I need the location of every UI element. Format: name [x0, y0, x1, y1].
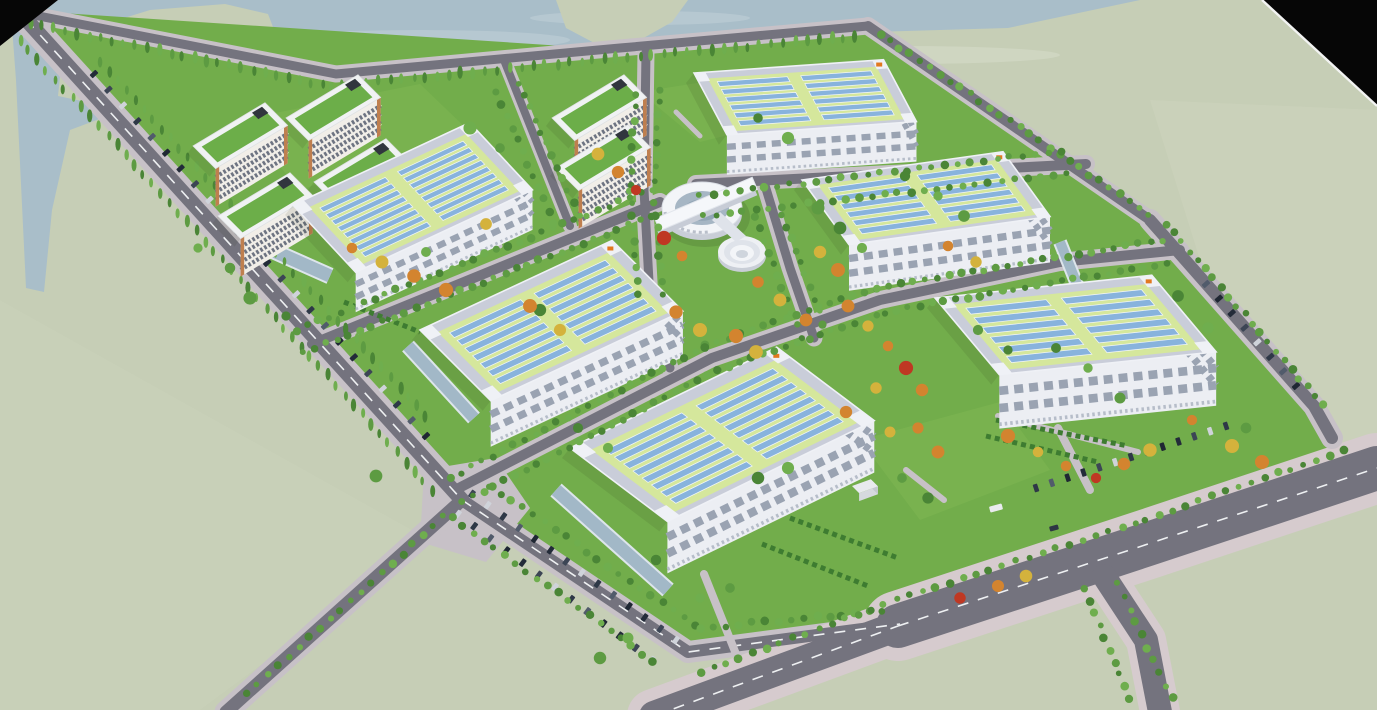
street-tree: [449, 265, 456, 272]
street-tree: [776, 640, 782, 646]
street-tree: [905, 48, 913, 56]
street-tree: [239, 275, 243, 284]
street-tree: [999, 178, 1005, 184]
street-tree: [265, 671, 272, 678]
street-tree: [1100, 247, 1106, 253]
street-tree: [736, 187, 743, 194]
lawn-tree: [495, 143, 505, 153]
lawn-tree: [1241, 423, 1252, 434]
street-tree: [547, 253, 554, 260]
street-tree: [804, 198, 812, 206]
street-tree: [837, 295, 844, 302]
street-tree: [975, 292, 984, 301]
street-tree: [1195, 497, 1202, 504]
street-tree: [1092, 532, 1099, 539]
street-tree: [503, 242, 512, 251]
street-tree: [934, 275, 941, 282]
street-tree: [497, 100, 506, 109]
street-tree: [1090, 608, 1098, 616]
street-tree: [1295, 375, 1302, 382]
street-tree: [43, 66, 47, 76]
street-tree: [659, 278, 666, 285]
street-tree: [414, 399, 419, 411]
street-tree: [469, 256, 477, 264]
lawn-tree: [651, 555, 661, 565]
street-tree: [641, 406, 647, 412]
street-tree: [992, 264, 1000, 272]
street-tree: [1155, 669, 1162, 676]
street-tree: [629, 200, 635, 206]
street-tree: [569, 245, 575, 251]
lawn-tree: [463, 121, 476, 134]
lawn-tree: [421, 247, 431, 257]
street-tree: [1033, 282, 1041, 290]
street-tree: [1039, 255, 1046, 262]
street-tree: [509, 440, 517, 448]
street-tree: [763, 645, 772, 654]
lawn-tree: [603, 443, 613, 453]
street-tree: [1025, 129, 1033, 137]
lawn-tree: [900, 171, 910, 181]
street-tree: [540, 194, 548, 202]
street-tree: [597, 397, 603, 403]
street-tree: [195, 224, 200, 235]
street-tree: [1159, 238, 1165, 244]
street-tree: [869, 194, 876, 201]
street-tree: [1066, 157, 1074, 165]
street-tree: [542, 455, 550, 463]
autumn-tree: [1001, 429, 1015, 443]
street-tree: [1148, 239, 1154, 245]
street-tree: [607, 392, 614, 399]
street-tree: [150, 115, 154, 125]
street-tree: [556, 59, 561, 71]
street-tree: [603, 52, 608, 64]
street-tree: [800, 615, 807, 622]
street-tree: [321, 80, 325, 89]
street-tree: [931, 583, 940, 592]
street-tree: [829, 198, 837, 206]
street-tree: [650, 398, 658, 406]
autumn-tree: [631, 185, 641, 195]
street-tree: [1156, 511, 1164, 519]
street-tree: [1094, 272, 1101, 279]
lawn-tree: [1202, 322, 1214, 334]
street-tree: [1075, 250, 1083, 258]
street-tree: [87, 109, 92, 122]
street-tree: [541, 426, 549, 434]
street-tree: [391, 285, 399, 293]
street-tree: [697, 669, 705, 677]
street-tree: [1313, 457, 1320, 464]
street-tree: [598, 620, 605, 627]
street-tree: [459, 260, 466, 267]
street-tree: [297, 644, 303, 650]
street-tree: [221, 254, 225, 263]
autumn-tree: [554, 324, 566, 336]
street-tree: [800, 181, 806, 187]
street-tree: [413, 466, 418, 479]
office-trim-pier: [284, 125, 288, 165]
street-tree: [1110, 245, 1116, 251]
street-tree: [841, 34, 845, 43]
street-tree: [628, 128, 636, 136]
street-tree: [998, 563, 1005, 570]
street-tree: [697, 45, 702, 57]
street-tree: [1273, 349, 1279, 355]
street-tree: [471, 530, 478, 537]
street-tree: [1208, 491, 1216, 499]
street-tree: [625, 53, 629, 63]
street-tree: [960, 574, 967, 581]
street-tree: [829, 621, 836, 628]
street-tree: [274, 661, 282, 669]
street-tree: [657, 99, 663, 105]
lawn-tree: [573, 423, 583, 433]
street-tree: [499, 446, 507, 454]
street-tree: [812, 178, 820, 186]
street-tree: [511, 471, 520, 480]
street-tree: [72, 93, 76, 102]
street-tree: [618, 387, 626, 395]
street-tree: [1087, 249, 1095, 257]
street-tree: [946, 579, 955, 588]
street-tree: [722, 660, 729, 667]
street-tree: [304, 633, 312, 641]
street-tree: [558, 174, 566, 182]
autumn-tree: [523, 299, 537, 313]
street-tree: [211, 246, 215, 256]
street-tree: [530, 173, 536, 179]
street-tree: [778, 204, 786, 212]
street-tree: [917, 302, 925, 310]
street-tree: [1282, 357, 1289, 364]
street-tree: [1289, 365, 1298, 374]
autumn-tree: [439, 283, 453, 297]
street-tree: [653, 139, 660, 146]
street-tree: [1249, 321, 1256, 328]
street-tree: [430, 523, 436, 529]
street-tree: [1018, 123, 1025, 130]
street-tree: [1098, 623, 1104, 629]
street-tree: [422, 411, 427, 423]
street-tree: [490, 454, 497, 461]
street-tree: [1139, 264, 1147, 272]
street-tree: [765, 206, 771, 212]
street-tree: [652, 178, 658, 184]
street-tree: [1134, 239, 1142, 247]
street-tree: [627, 578, 634, 585]
street-tree: [773, 272, 781, 280]
street-tree: [969, 268, 976, 275]
street-tree: [158, 188, 162, 199]
street-tree: [852, 30, 857, 43]
street-tree: [39, 20, 43, 30]
street-tree: [877, 30, 886, 39]
street-tree: [490, 275, 496, 281]
street-tree: [481, 488, 489, 496]
autumn-tree: [657, 231, 671, 245]
street-tree: [356, 327, 364, 335]
autumn-tree: [899, 361, 913, 375]
lawn-tree: [281, 311, 290, 320]
street-tree: [631, 252, 637, 258]
street-tree: [769, 318, 776, 325]
street-tree: [1064, 253, 1072, 261]
street-tree: [713, 366, 721, 374]
street-tree: [501, 551, 509, 559]
roof-logo-mark: [607, 246, 613, 250]
street-tree: [986, 290, 992, 296]
street-tree: [379, 569, 386, 576]
street-tree: [941, 161, 950, 170]
street-tree: [564, 188, 570, 194]
street-tree: [543, 139, 549, 145]
autumn-tree: [883, 341, 894, 352]
street-tree: [366, 323, 374, 331]
street-tree: [1116, 670, 1122, 676]
street-tree: [670, 359, 676, 365]
street-tree: [598, 427, 605, 434]
street-tree: [1052, 544, 1059, 551]
street-tree: [615, 571, 621, 577]
lawn-tree: [752, 472, 764, 484]
street-tree: [538, 228, 544, 234]
street-tree: [470, 67, 475, 80]
street-tree: [628, 409, 636, 417]
street-tree: [1128, 608, 1134, 614]
street-tree: [527, 234, 536, 243]
street-tree: [565, 415, 572, 422]
autumn-tree: [774, 294, 787, 307]
autumn-tree: [677, 251, 688, 262]
street-tree: [400, 309, 408, 317]
street-tree: [533, 432, 539, 438]
street-tree: [544, 582, 552, 590]
street-tree: [971, 182, 977, 188]
street-tree: [61, 84, 65, 94]
street-tree: [1080, 273, 1088, 281]
street-tree: [523, 467, 530, 474]
street-tree: [300, 349, 306, 355]
street-tree: [651, 212, 660, 221]
street-tree: [825, 176, 832, 183]
street-tree: [801, 631, 808, 638]
street-tree: [204, 237, 209, 248]
street-tree: [63, 27, 67, 35]
street-tree: [516, 239, 523, 246]
autumn-tree: [1091, 473, 1101, 483]
street-tree: [458, 498, 465, 505]
street-tree: [490, 544, 496, 550]
street-tree: [818, 321, 826, 329]
street-tree: [377, 429, 381, 438]
street-tree: [343, 332, 351, 340]
autumn-tree: [814, 246, 826, 258]
street-tree: [812, 297, 818, 303]
autumn-tree: [480, 218, 492, 230]
street-tree: [1120, 682, 1129, 691]
street-tree: [547, 151, 556, 160]
street-tree: [636, 585, 643, 592]
street-tree: [1195, 257, 1201, 263]
street-tree: [783, 314, 791, 322]
street-tree: [110, 37, 114, 47]
street-tree: [654, 125, 660, 131]
street-tree: [957, 269, 965, 277]
lawn-tree: [594, 652, 606, 664]
street-tree: [697, 624, 705, 632]
street-tree: [837, 173, 845, 181]
street-tree: [789, 633, 796, 640]
street-tree: [647, 368, 655, 376]
street-tree: [483, 66, 487, 76]
street-tree: [633, 104, 639, 110]
street-tree: [656, 87, 663, 94]
street-tree: [937, 71, 945, 79]
street-tree: [756, 39, 760, 50]
street-tree: [293, 327, 301, 335]
street-tree: [521, 92, 528, 99]
street-tree: [830, 31, 835, 44]
street-tree: [509, 125, 516, 132]
street-tree: [1010, 287, 1016, 293]
street-tree: [577, 213, 583, 219]
office-trim-pier: [241, 237, 245, 277]
street-tree: [1187, 249, 1193, 255]
street-tree: [775, 618, 783, 626]
street-tree: [391, 314, 398, 321]
street-tree: [586, 611, 594, 619]
street-tree: [734, 622, 742, 630]
street-tree: [759, 321, 767, 329]
street-tree: [760, 183, 769, 192]
street-tree: [653, 151, 661, 159]
street-tree: [252, 66, 256, 76]
street-tree: [1017, 261, 1023, 267]
office-trim-pier: [377, 97, 381, 137]
street-tree: [680, 354, 688, 362]
street-tree: [447, 474, 455, 482]
street-tree: [881, 190, 888, 197]
street-tree: [480, 280, 487, 287]
street-tree: [1243, 310, 1250, 317]
autumn-tree: [912, 422, 923, 433]
street-tree: [522, 569, 529, 576]
street-tree: [947, 79, 953, 85]
street-tree: [603, 563, 612, 572]
street-tree: [588, 432, 595, 439]
street-tree: [371, 295, 379, 303]
street-tree: [1107, 647, 1115, 655]
street-tree: [794, 339, 801, 346]
street-tree: [426, 274, 432, 280]
street-tree: [308, 286, 312, 295]
street-tree: [314, 316, 322, 324]
street-tree: [928, 164, 934, 170]
street-tree: [1020, 153, 1026, 159]
street-tree: [274, 312, 278, 323]
street-tree: [966, 158, 974, 166]
street-tree: [745, 43, 749, 52]
street-tree: [263, 67, 268, 78]
street-tree: [575, 437, 584, 446]
autumn-tree: [749, 345, 763, 359]
street-tree: [304, 321, 311, 328]
street-tree: [399, 73, 403, 84]
street-tree: [495, 66, 499, 75]
street-tree: [549, 219, 558, 228]
street-tree: [325, 368, 330, 380]
street-tree: [620, 417, 627, 424]
street-tree: [788, 234, 797, 243]
street-tree: [533, 118, 539, 124]
street-tree: [281, 324, 285, 333]
street-tree: [673, 47, 677, 57]
autumn-tree: [842, 300, 855, 313]
street-tree: [781, 38, 785, 48]
street-tree: [512, 560, 519, 567]
office-trim-pier: [216, 167, 220, 207]
street-tree: [1264, 339, 1270, 345]
street-tree: [1004, 263, 1010, 269]
street-tree: [311, 345, 319, 353]
street-tree: [907, 188, 916, 197]
street-tree: [980, 268, 987, 275]
street-tree: [771, 261, 777, 267]
lawn-tree: [1114, 392, 1125, 403]
street-tree: [1319, 400, 1327, 408]
site-plan-canvas: [0, 0, 1377, 710]
lawn-tree: [922, 492, 933, 503]
street-tree: [816, 331, 823, 338]
street-tree: [650, 187, 656, 193]
autumn-tree: [1143, 443, 1156, 456]
street-tree: [488, 482, 496, 490]
street-tree: [685, 47, 689, 56]
street-tree: [523, 161, 531, 169]
street-tree: [1136, 205, 1142, 211]
street-tree: [1249, 480, 1255, 486]
lawn-tree: [834, 222, 847, 235]
street-tree: [798, 259, 804, 265]
street-tree: [592, 555, 600, 563]
lawn-tree: [243, 291, 256, 304]
lawn-tree: [225, 263, 236, 274]
street-tree: [132, 40, 136, 50]
street-tree: [946, 184, 953, 191]
lawn-tree: [1051, 343, 1061, 353]
street-tree: [1007, 117, 1013, 123]
street-tree: [986, 105, 994, 113]
street-tree: [107, 131, 111, 141]
autumn-tree: [1225, 439, 1239, 453]
street-tree: [1125, 695, 1133, 703]
street-tree: [1236, 484, 1242, 490]
street-tree: [562, 532, 570, 540]
street-tree: [344, 391, 348, 400]
street-tree: [1027, 257, 1034, 264]
street-tree: [470, 493, 476, 499]
street-tree: [580, 58, 584, 67]
roof-logo-mark: [876, 63, 882, 67]
street-tree: [143, 105, 146, 113]
street-tree: [714, 213, 720, 219]
street-tree: [801, 271, 807, 277]
street-tree: [520, 63, 524, 72]
street-tree: [879, 601, 886, 608]
street-tree: [893, 189, 900, 196]
